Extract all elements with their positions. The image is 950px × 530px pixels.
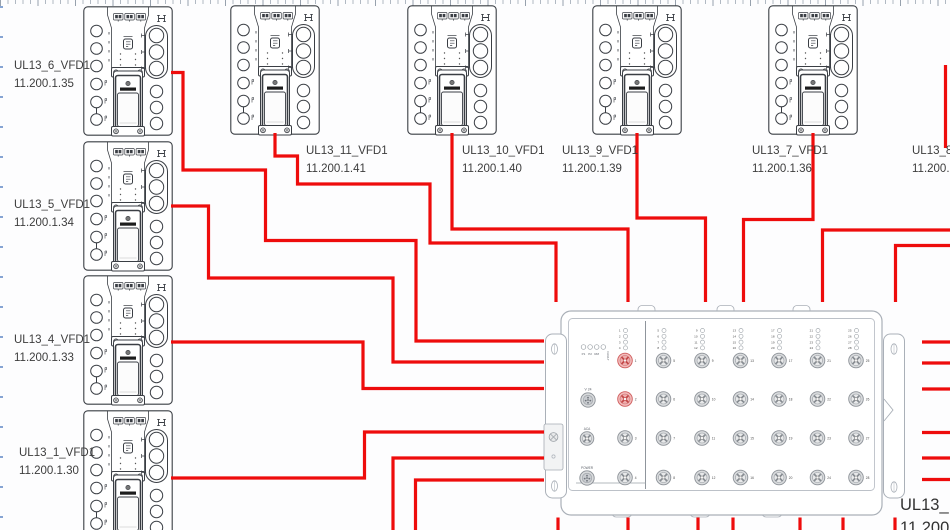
cable-ul13-9[interactable] (637, 133, 706, 302)
cable-ul13-4[interactable] (171, 342, 544, 389)
port-led (777, 334, 781, 338)
port-led-number: 22 (810, 335, 814, 339)
port-led-number: 12 (694, 346, 698, 350)
svg-text:21: 21 (827, 359, 831, 363)
device-label-ul13-9[interactable]: UL13_9_VFD1 11.200.1.39 (562, 142, 638, 178)
device-name: UL13_4_VFD1 (14, 331, 90, 349)
svg-text:25: 25 (866, 359, 870, 363)
device-name: UL13_11_VFD1 (306, 142, 388, 160)
port-led-number: 11 (694, 340, 697, 344)
port-led-number: 13 (733, 329, 737, 333)
port-led (623, 328, 627, 332)
device-name: UL13_9_VFD1 (562, 142, 638, 160)
svg-text:19: 19 (789, 436, 793, 440)
port-led (854, 334, 858, 338)
svg-text:12: 12 (712, 476, 716, 480)
switch-ip: 11.200 (900, 517, 949, 530)
port-led (777, 346, 781, 350)
port-led (816, 346, 820, 350)
port-led-number: 16 (733, 346, 737, 350)
device-ip: 11.200.1.41 (306, 160, 388, 178)
port-led (623, 340, 627, 344)
aux-label-aca: ACA (584, 427, 591, 431)
vfd-device-ul13-11[interactable] (231, 6, 319, 135)
svg-text:6: 6 (673, 397, 675, 401)
device-label-ul13-11[interactable]: UL13_11_VFD1 11.200.1.41 (306, 142, 388, 178)
aux-label-power: POWER (581, 466, 594, 470)
svg-text:9: 9 (712, 359, 714, 363)
port-led-number: 23 (810, 340, 814, 344)
device-label-ul13-10[interactable]: UL13_10_VFD1 11.200.1.40 (462, 142, 544, 178)
port-led (816, 334, 820, 338)
led-label-p1: P1 (582, 352, 586, 356)
port-led-number: 24 (810, 346, 814, 350)
svg-text:18: 18 (789, 397, 793, 401)
port-led (816, 328, 820, 332)
device-name: UL13_7_VFD1 (752, 142, 828, 160)
switch-clamp (544, 424, 563, 470)
svg-text:27: 27 (866, 436, 870, 440)
port-led (662, 346, 666, 350)
svg-text:17: 17 (789, 359, 793, 363)
device-ip: 11.200.1.30 (19, 462, 95, 480)
vfd-device-ul13-9[interactable] (593, 6, 681, 135)
switch-port-power[interactable] (580, 471, 594, 485)
device-name: UL13_1_VFD1 (19, 444, 95, 462)
vfd-device-ul13-1[interactable] (84, 411, 172, 530)
port-led (662, 328, 666, 332)
port-led-number: 17 (771, 329, 775, 333)
aux-label-v24: V 24 (585, 388, 592, 392)
port-led (700, 328, 704, 332)
svg-text:1: 1 (635, 359, 637, 363)
port-led (816, 340, 820, 344)
port-led-number: 18 (771, 335, 775, 339)
vfd-device-ul13-6[interactable] (84, 7, 172, 136)
svg-text:15: 15 (750, 436, 754, 440)
svg-text:14: 14 (750, 397, 754, 401)
port-led-number: 15 (733, 340, 737, 344)
port-led (739, 346, 743, 350)
port-led (623, 346, 627, 350)
device-ip: 11.200.1.36 (752, 160, 828, 178)
device-label-ul13-4[interactable]: UL13_4_VFD1 11.200.1.33 (14, 331, 90, 367)
port-led (739, 328, 743, 332)
port-led (700, 346, 704, 350)
vfd-device-ul13-10[interactable] (408, 6, 496, 135)
device-ip: 11.200.1 (912, 160, 950, 178)
port-led-number: 14 (733, 335, 737, 339)
svg-text:24: 24 (827, 476, 831, 480)
vfd-device-ul13-7[interactable] (769, 6, 857, 135)
svg-text:5: 5 (673, 359, 675, 363)
port-led (623, 334, 627, 338)
diagram-canvas: P1 P2 RM FAULT V 24 ACA POWER 1234567891… (0, 0, 950, 530)
switch-aux-port[interactable] (580, 432, 594, 446)
port-led-number: 26 (848, 335, 852, 339)
vfd-device-ul13-4[interactable] (84, 276, 172, 405)
device-name: UL13_6_VFD1 (14, 57, 90, 75)
port-led (662, 334, 666, 338)
led-label-p2: P2 (588, 352, 592, 356)
device-label-ul13-5[interactable]: UL13_5_VFD1 11.200.1.34 (14, 196, 90, 232)
device-name: UL13_5_VFD1 (14, 196, 90, 214)
switch-name: UL13_ (900, 494, 949, 517)
cable-bottom-left-b[interactable] (416, 480, 545, 530)
device-label-ul13-1[interactable]: UL13_1_VFD1 11.200.1.30 (19, 444, 95, 480)
svg-text:26: 26 (866, 397, 870, 401)
port-led-number: 10 (694, 335, 698, 339)
port-led (700, 334, 704, 338)
device-name: UL13_8_ (912, 142, 950, 160)
device-label-ul13-7[interactable]: UL13_7_VFD1 11.200.1.36 (752, 142, 828, 178)
port-led-number: 21 (810, 329, 814, 333)
port-led-number: 25 (848, 329, 852, 333)
port-led (777, 328, 781, 332)
port-led (739, 340, 743, 344)
port-led (854, 328, 858, 332)
switch-port-v24[interactable] (581, 393, 595, 407)
svg-text:10: 10 (712, 397, 716, 401)
device-ip: 11.200.1.33 (14, 349, 90, 367)
svg-text:3: 3 (635, 436, 637, 440)
svg-text:2: 2 (635, 397, 637, 401)
switch-label[interactable]: UL13_ 11.200 (900, 494, 949, 530)
device-ip: 11.200.1.34 (14, 214, 90, 232)
port-led (777, 340, 781, 344)
svg-text:23: 23 (827, 436, 831, 440)
svg-text:20: 20 (789, 476, 793, 480)
svg-text:4: 4 (635, 476, 637, 480)
port-led (854, 340, 858, 344)
svg-text:8: 8 (673, 476, 675, 480)
port-led (662, 340, 666, 344)
port-led-number: 27 (848, 340, 852, 344)
port-led-number: 20 (771, 346, 775, 350)
cable-ul13-1[interactable] (171, 432, 544, 478)
svg-text:11: 11 (712, 436, 716, 440)
device-label-ul13-8[interactable]: UL13_8_ 11.200.1 (912, 142, 950, 178)
port-led (854, 346, 858, 350)
device-label-ul13-6[interactable]: UL13_6_VFD1 11.200.1.35 (14, 57, 90, 93)
svg-text:28: 28 (866, 476, 870, 480)
port-led (739, 334, 743, 338)
port-led-number: 19 (771, 340, 775, 344)
device-ip: 11.200.1.35 (14, 75, 90, 93)
device-ip: 11.200.1.40 (462, 160, 544, 178)
svg-text:13: 13 (750, 359, 754, 363)
svg-text:7: 7 (673, 436, 675, 440)
device-ip: 11.200.1.39 (562, 160, 638, 178)
diagram-svg: P1 P2 RM FAULT V 24 ACA POWER 1234567891… (0, 0, 950, 530)
port-led (700, 340, 704, 344)
port-led-number: 28 (848, 346, 852, 350)
cable-right-top-b[interactable] (896, 246, 950, 303)
led-label-fault: FAULT (606, 352, 610, 361)
svg-text:22: 22 (827, 397, 831, 401)
vfd-device-ul13-5[interactable] (84, 142, 172, 271)
cable-right-top-a[interactable] (823, 230, 950, 302)
led-label-rm: RM (594, 352, 599, 356)
device-name: UL13_10_VFD1 (462, 142, 544, 160)
svg-text:16: 16 (750, 476, 754, 480)
